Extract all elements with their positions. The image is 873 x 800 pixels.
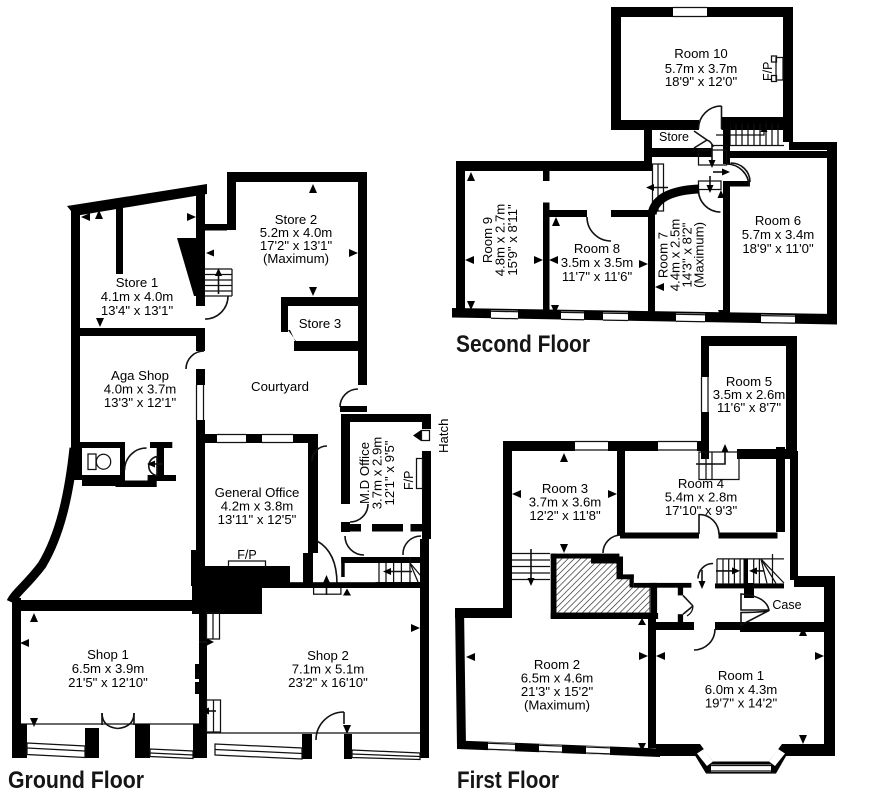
svg-text:Room 6: Room 6 bbox=[755, 213, 801, 228]
svg-text:21'5" x 12'10": 21'5" x 12'10" bbox=[68, 675, 148, 690]
svg-text:Store: Store bbox=[659, 130, 689, 144]
svg-text:First Floor: First Floor bbox=[457, 767, 559, 794]
svg-text:5.7m x 3.4m: 5.7m x 3.4m bbox=[742, 227, 815, 242]
svg-text:3.5m x 3.5m: 3.5m x 3.5m bbox=[561, 255, 634, 270]
svg-text:4.1m x 4.0m: 4.1m x 4.0m bbox=[101, 289, 174, 304]
svg-text:Store 1: Store 1 bbox=[116, 275, 159, 290]
svg-text:F/P: F/P bbox=[761, 62, 775, 81]
svg-text:Shop 1: Shop 1 bbox=[87, 647, 129, 662]
svg-text:17'10" x 9'3": 17'10" x 9'3" bbox=[665, 503, 738, 518]
svg-text:19'7" x 14'2": 19'7" x 14'2" bbox=[705, 696, 778, 711]
svg-text:Case: Case bbox=[772, 598, 801, 612]
svg-text:(Maximum): (Maximum) bbox=[524, 698, 590, 713]
svg-text:F/P: F/P bbox=[402, 471, 416, 490]
svg-text:13'3" x 12'1": 13'3" x 12'1" bbox=[104, 395, 177, 410]
svg-text:Hatch: Hatch bbox=[436, 419, 451, 453]
svg-text:Second Floor: Second Floor bbox=[456, 331, 590, 358]
svg-text:11'7" x 11'6": 11'7" x 11'6" bbox=[562, 269, 633, 284]
svg-text:Store 3: Store 3 bbox=[299, 316, 342, 331]
svg-text:Room 10: Room 10 bbox=[674, 46, 728, 61]
svg-text:13'4" x 13'1": 13'4" x 13'1" bbox=[101, 303, 174, 318]
svg-text:23'2" x 16'10": 23'2" x 16'10" bbox=[288, 675, 368, 690]
svg-text:12'2" x 11'8": 12'2" x 11'8" bbox=[529, 508, 601, 523]
svg-text:Courtyard: Courtyard bbox=[251, 379, 309, 394]
svg-text:Room 8: Room 8 bbox=[574, 241, 620, 256]
svg-text:15'9" x 8'11": 15'9" x 8'11" bbox=[505, 204, 520, 276]
svg-text:Ground Floor: Ground Floor bbox=[8, 767, 144, 794]
svg-text:6.5m x 3.9m: 6.5m x 3.9m bbox=[72, 661, 145, 676]
svg-text:(Maximum): (Maximum) bbox=[692, 222, 707, 288]
svg-text:F/P: F/P bbox=[237, 548, 256, 562]
svg-text:11'6" x 8'7": 11'6" x 8'7" bbox=[717, 400, 781, 415]
svg-text:Room 1: Room 1 bbox=[718, 668, 764, 683]
svg-text:13'11" x 12'5": 13'11" x 12'5" bbox=[218, 512, 297, 527]
svg-text:12'1" x 9'5": 12'1" x 9'5" bbox=[382, 440, 397, 505]
svg-text:18'9" x 11'0": 18'9" x 11'0" bbox=[742, 241, 814, 256]
svg-text:(Maximum): (Maximum) bbox=[263, 251, 329, 266]
svg-text:18'9" x 12'0": 18'9" x 12'0" bbox=[665, 74, 738, 89]
